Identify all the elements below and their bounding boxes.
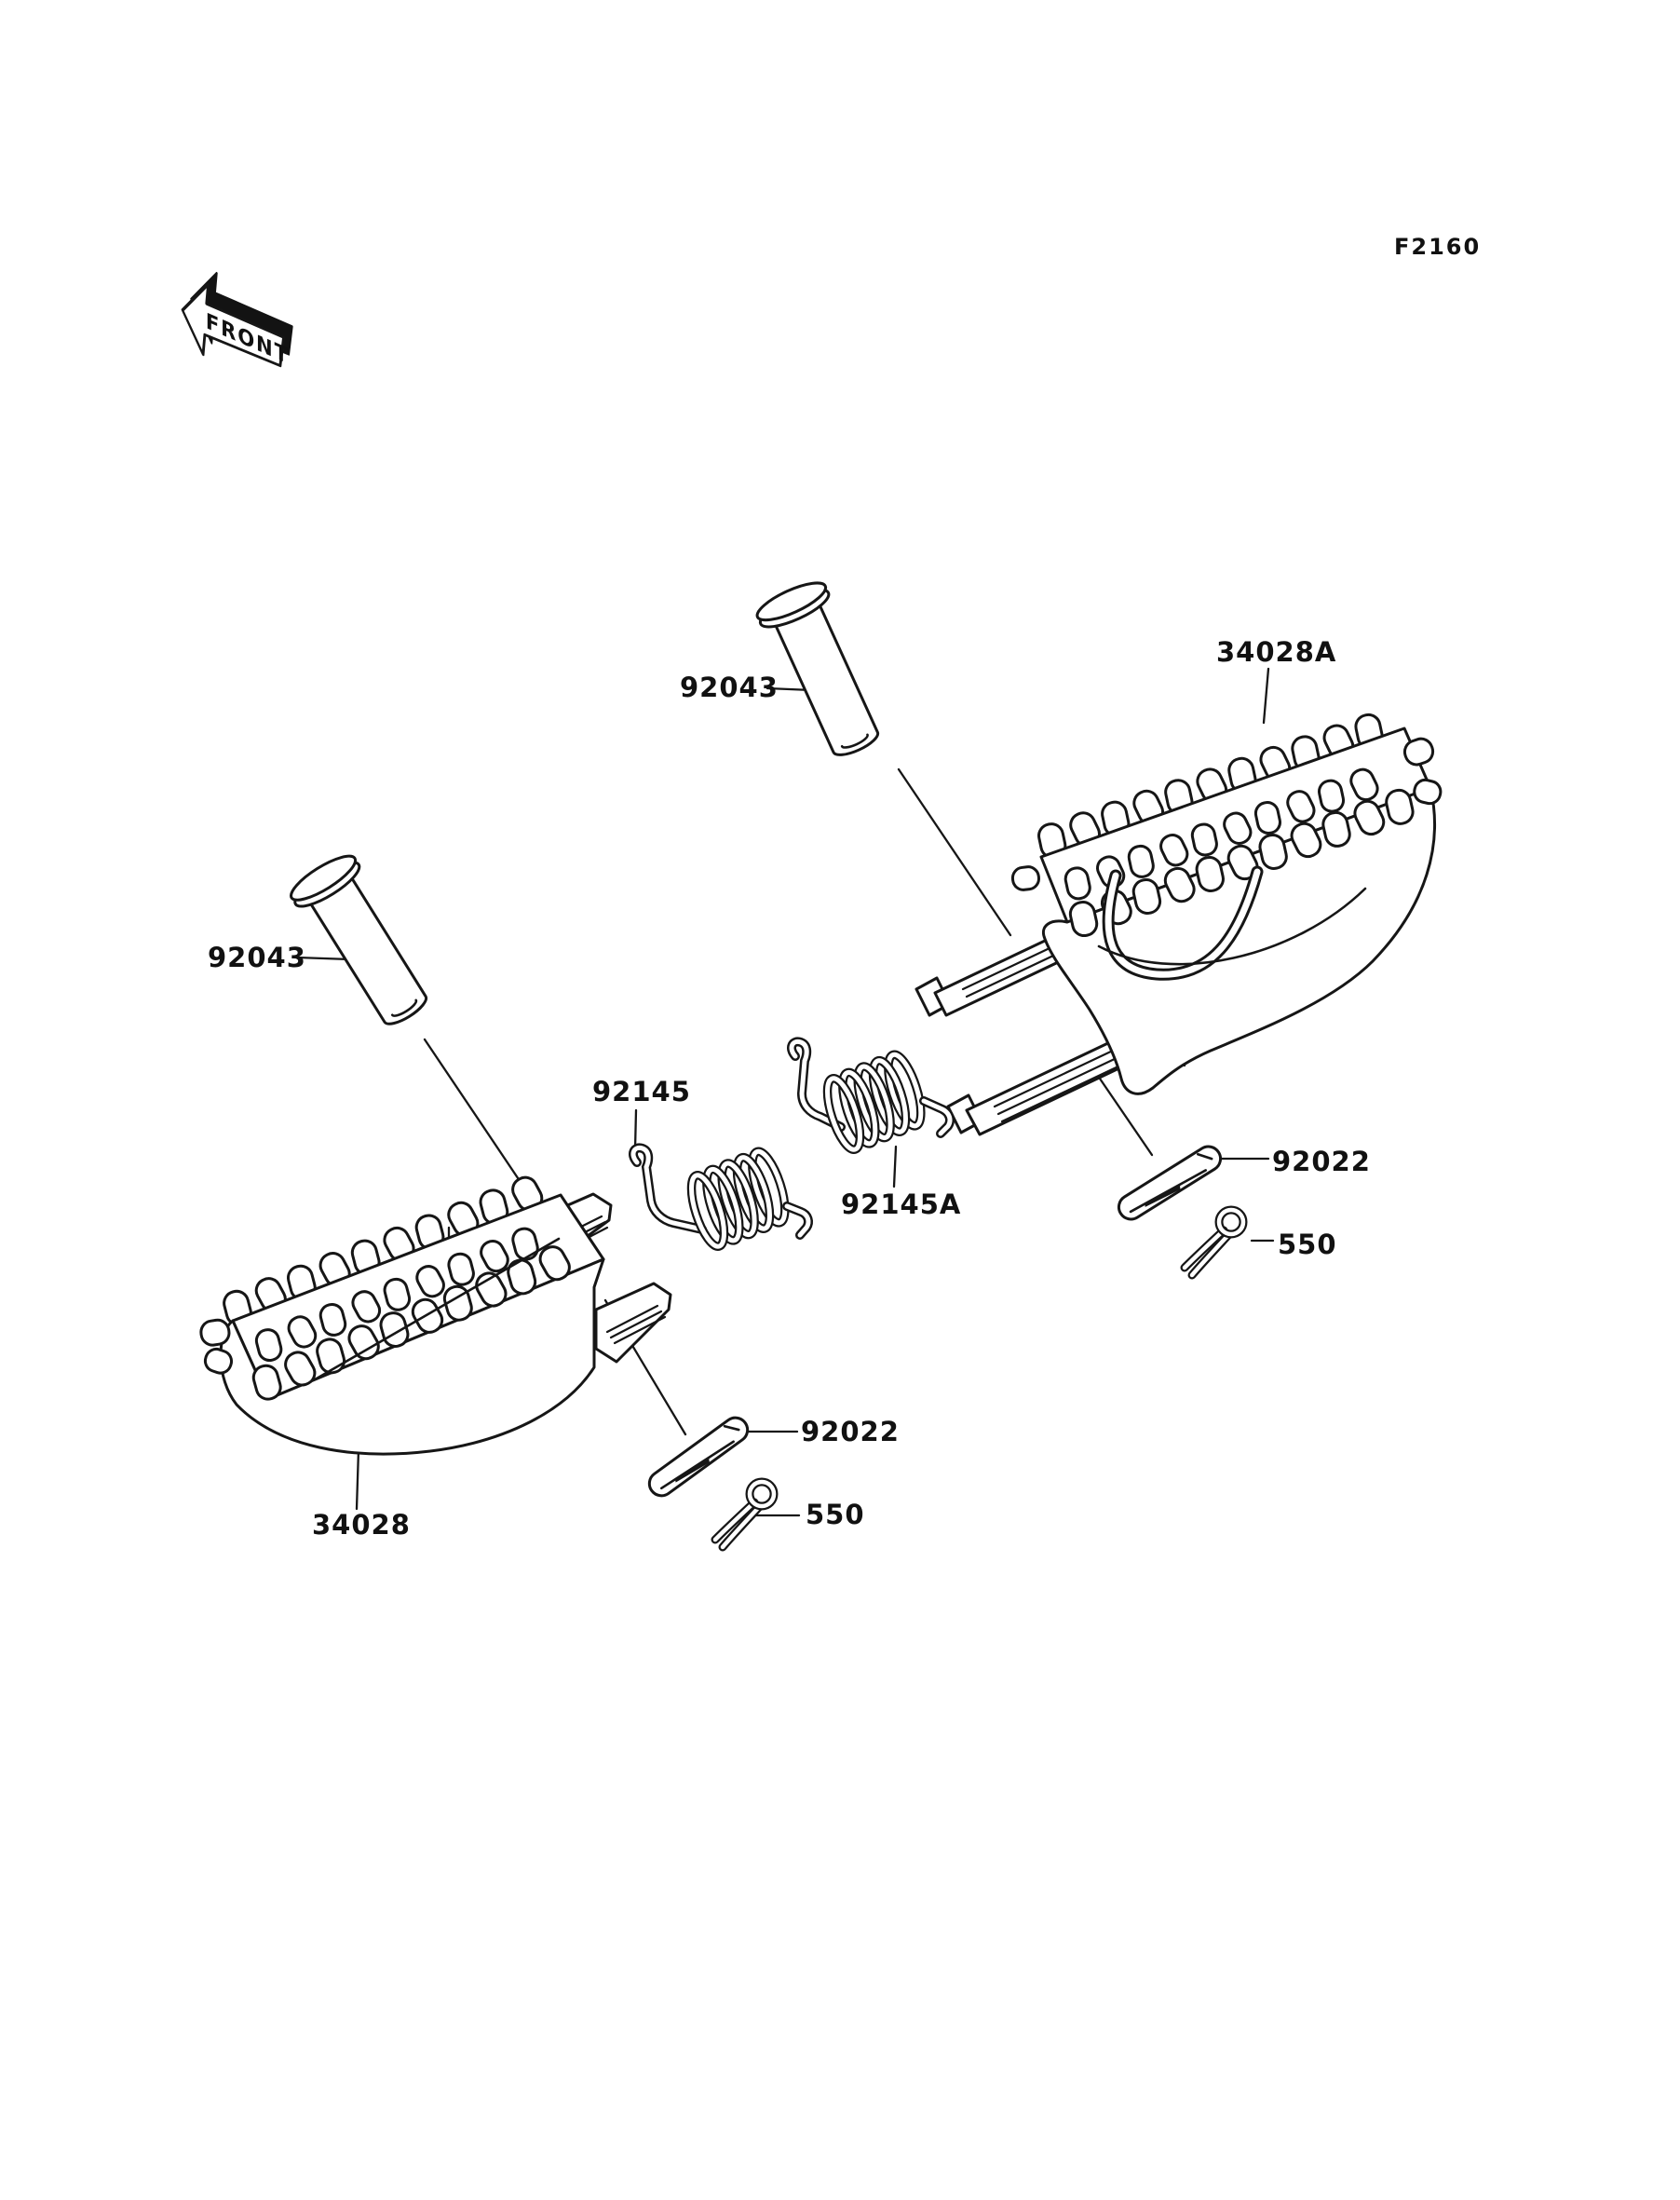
pin-lower-drawing [286,849,441,1036]
part-label-92043-upper: 92043 [680,674,779,701]
footpeg-lower-drawing [196,1172,671,1454]
parts-diagram-canvas: FRONT [0,0,1680,2200]
spring-92145A-drawing [792,1041,950,1153]
part-label-34028: 34028 [312,1512,411,1539]
washer-upper-drawing [1115,1142,1226,1224]
footpeg-upper-drawing [916,710,1443,1134]
part-label-92145: 92145 [592,1079,691,1106]
part-label-550-upper: 550 [1278,1231,1337,1258]
part-label-34028A: 34028A [1216,639,1336,666]
part-label-92022-upper: 92022 [1272,1148,1371,1175]
part-label-550-lower: 550 [806,1501,865,1528]
spring-92145-drawing [633,1148,808,1250]
cotter-pin-upper-drawing [1185,1210,1243,1275]
front-arrow-icon: FRONT [183,258,292,393]
washer-lower-drawing [644,1413,752,1501]
figure-code: F2160 [1394,236,1481,258]
part-label-92022-lower: 92022 [801,1419,900,1446]
part-label-92043-lower: 92043 [208,944,306,971]
pin-upper-drawing [752,576,892,765]
part-label-92145A: 92145A [841,1191,961,1218]
